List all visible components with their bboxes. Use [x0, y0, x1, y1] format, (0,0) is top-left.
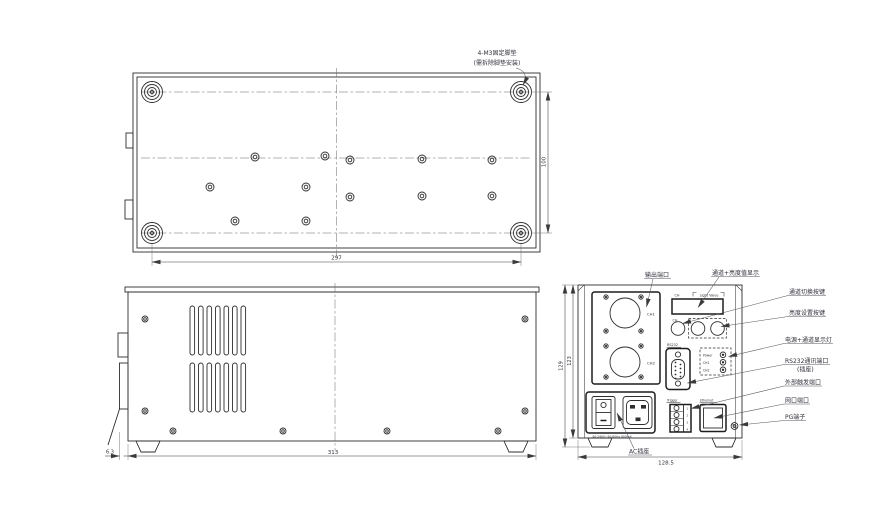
brightness-up-button[interactable] [691, 322, 705, 336]
power-led [720, 352, 726, 358]
callout-display: 通道+亮度值显示 [712, 269, 759, 277]
side-outline [128, 292, 536, 441]
trigger-pin1: 1 [686, 406, 688, 410]
callout-brightness-set: 亮度设置按键 [789, 309, 825, 317]
output-panel: CH1 CH2 [592, 292, 660, 384]
bottom-screws [206, 152, 496, 225]
output-port-ch2 [610, 347, 640, 377]
ethernet-label: Ethernet [700, 399, 714, 403]
rear-height-inner-dim: 123 [567, 356, 573, 366]
callout-channel-switch: 通道切换按键 [789, 288, 825, 296]
button-area: CH [671, 319, 726, 339]
drawing-canvas: 4-M3固定脚垫 (需拆除脚垫安装) 297 100 [0, 0, 888, 522]
callout-ac: AC插座 [629, 448, 649, 456]
footpad-note-line2: (需拆除脚垫安装) [474, 59, 521, 67]
led-indicator-area: Power CH1 CH2 [700, 348, 731, 375]
power-switch[interactable] [592, 397, 615, 429]
rs232-pins [675, 362, 682, 380]
trigger-pin3: 3 [686, 420, 688, 424]
side-offset-dim: 6.3 [106, 450, 114, 456]
callout-rs232-line1: RS232通讯端口 [785, 357, 828, 365]
trigger-pin2: 2 [686, 413, 688, 417]
ac-rating-text: 90-240V~50/60Hz 800mA [592, 434, 632, 438]
output-port-ch1 [610, 298, 640, 328]
side-left-protrusions [108, 333, 128, 445]
trigger-label: Trigger [666, 399, 678, 403]
top-view-width-dim: 297 [331, 256, 342, 262]
rear-height-outer-dim: 129 [559, 361, 565, 371]
vent-slots-lower [190, 363, 246, 412]
rear-view: CH1 CH2 CH Light Value CH [559, 285, 743, 467]
channel-switch-button[interactable] [671, 322, 685, 336]
top-view-depth-dim: 100 [542, 156, 548, 167]
trigger-pin4: 4 [686, 427, 688, 431]
brightness-down-button[interactable] [711, 322, 725, 336]
callout-trigger: 外部触发端口 [785, 379, 821, 387]
top-view: 4-M3固定脚垫 (需拆除脚垫安装) 297 100 [125, 49, 552, 266]
rs232-connector: RS232 [666, 343, 690, 390]
vent-slots-upper [190, 306, 246, 355]
display-ch-label: CH [675, 294, 680, 298]
led-ch2-label: CH2 [703, 368, 709, 372]
display-value-label: Light Value [700, 294, 719, 298]
led-power-label: Power [703, 353, 713, 357]
footpad-note-line1: 4-M3固定脚垫 [478, 49, 517, 57]
rs232-label: RS232 [667, 343, 678, 347]
side-width-dim: 313 [328, 450, 339, 456]
callout-output-port: 输出端口 [645, 271, 669, 279]
callout-pg: PG端子 [785, 413, 805, 421]
left-tab-1 [126, 133, 133, 148]
centerlines [141, 68, 532, 257]
iec-inlet [623, 397, 652, 429]
trigger-terminal: Trigger 1 2 3 4 [666, 399, 691, 433]
pg-terminal [731, 423, 738, 430]
callout-leds: 电源+通道显示灯 [785, 336, 832, 344]
side-top-lip [125, 287, 539, 292]
brightness-display [672, 299, 723, 314]
left-tab-2 [125, 200, 133, 219]
ch2-label: CH2 [647, 361, 656, 366]
ch1-led [720, 360, 726, 366]
display-area: CH Light Value [672, 293, 724, 315]
led-ch1-label: CH1 [703, 361, 709, 365]
ac-inlet-area: 90-240V~50/60Hz 800mA [586, 392, 655, 438]
output-panel-screws [604, 295, 643, 379]
callout-rs232-line2: (插座) [797, 366, 814, 374]
rear-width-dim: 128.5 [658, 461, 674, 467]
engineering-drawing: 4-M3固定脚垫 (需拆除脚垫安装) 297 100 [0, 0, 888, 522]
callout-ethernet: 网口端口 [785, 397, 809, 405]
rear-feet [588, 438, 736, 447]
ch1-label: CH1 [647, 312, 656, 317]
ch2-led [720, 367, 726, 373]
side-view: 313 6.3 [105, 283, 539, 460]
